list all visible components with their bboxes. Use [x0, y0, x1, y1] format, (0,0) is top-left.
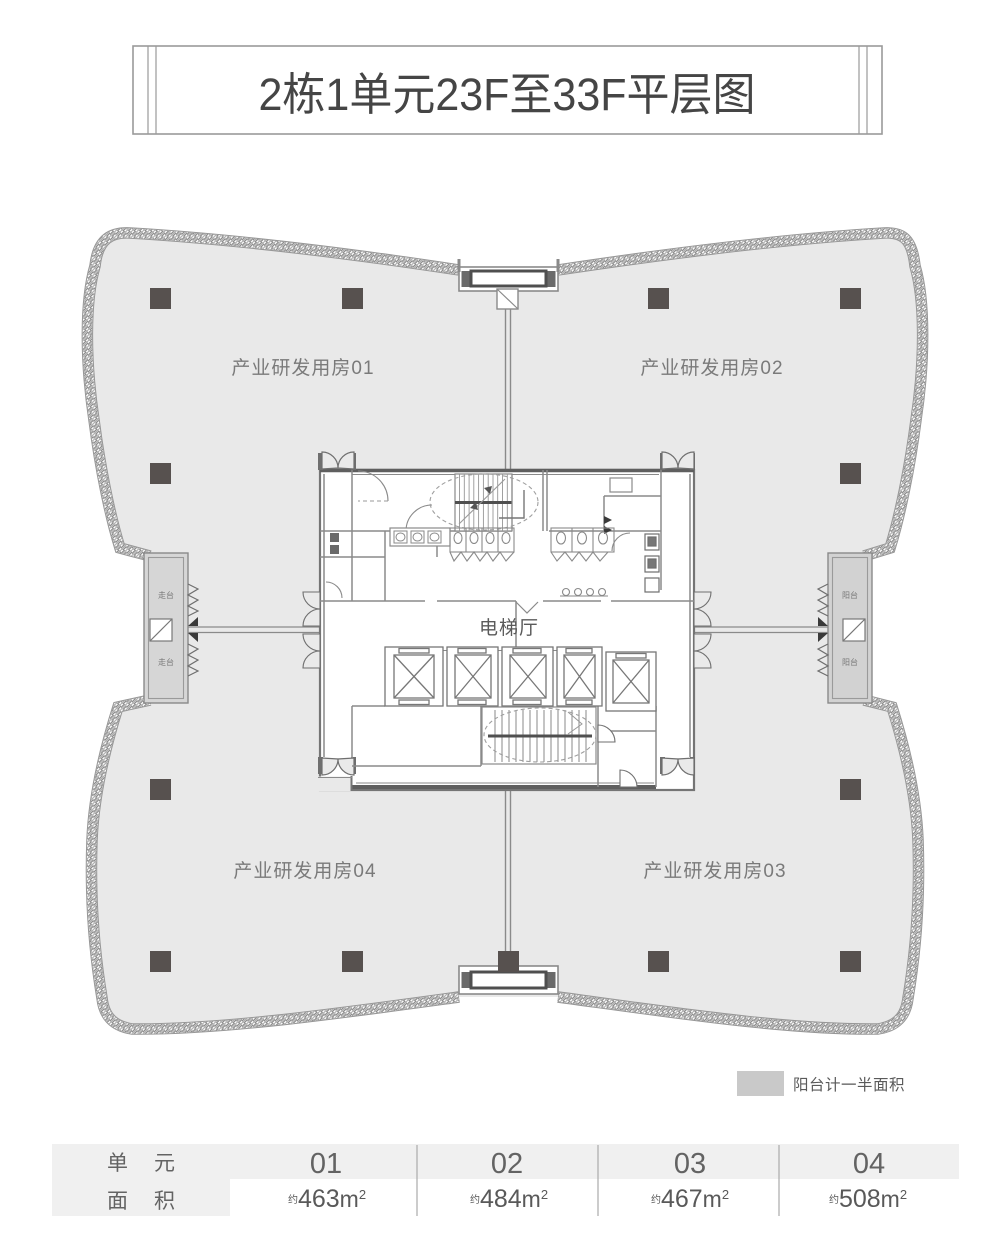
svg-text:02: 02	[491, 1148, 523, 1180]
svg-text:约508m2: 约508m2	[829, 1185, 907, 1213]
svg-text:产业研发用房01: 产业研发用房01	[231, 357, 374, 379]
svg-text:阳台: 阳台	[842, 590, 858, 600]
svg-text:产业研发用房02: 产业研发用房02	[640, 357, 783, 379]
svg-text:04: 04	[853, 1148, 885, 1180]
svg-text:产业研发用房04: 产业研发用房04	[233, 860, 376, 882]
svg-text:积: 积	[154, 1190, 175, 1213]
svg-text:2栋1单元23F至33F平层图: 2栋1单元23F至33F平层图	[259, 69, 756, 120]
svg-text:约463m2: 约463m2	[288, 1185, 366, 1213]
svg-text:面: 面	[107, 1190, 128, 1213]
svg-text:约467m2: 约467m2	[651, 1185, 729, 1213]
svg-text:阳台计一半面积: 阳台计一半面积	[793, 1076, 905, 1094]
svg-text:电梯厅: 电梯厅	[479, 617, 539, 639]
svg-text:走台: 走台	[158, 657, 174, 667]
svg-text:01: 01	[310, 1148, 342, 1180]
svg-text:约484m2: 约484m2	[470, 1185, 548, 1213]
svg-text:03: 03	[674, 1148, 706, 1180]
svg-text:产业研发用房03: 产业研发用房03	[643, 860, 786, 882]
svg-text:元: 元	[154, 1152, 175, 1175]
svg-text:单: 单	[107, 1152, 128, 1175]
svg-text:走台: 走台	[158, 590, 174, 600]
svg-text:阳台: 阳台	[842, 657, 858, 667]
